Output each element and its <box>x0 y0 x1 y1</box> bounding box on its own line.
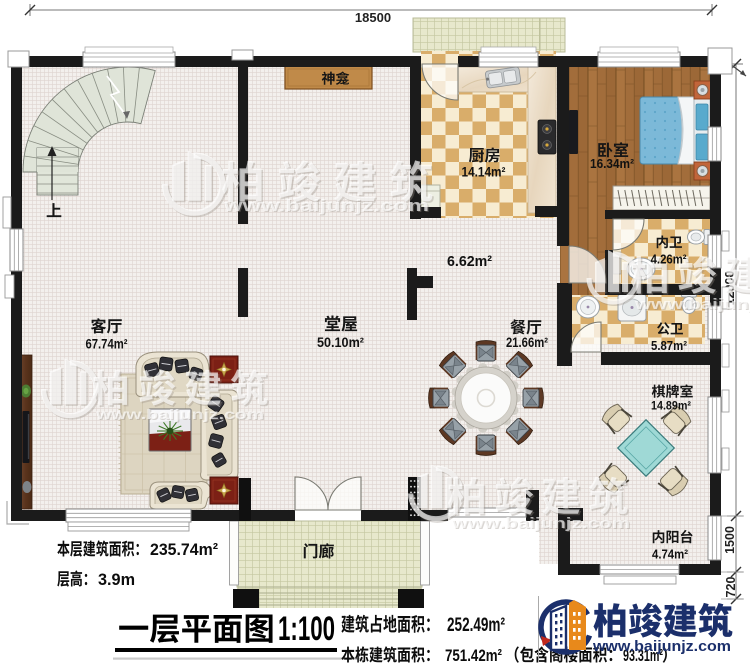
svg-text:1:100: 1:100 <box>278 610 335 648</box>
svg-text:50.10m²: 50.10m² <box>317 335 364 350</box>
svg-text:5.87m²: 5.87m² <box>651 339 687 353</box>
svg-text:www.baijunjz.com: www.baijunjz.com <box>592 638 731 655</box>
svg-text:www.baijunjz.com: www.baijunjz.com <box>634 296 750 313</box>
svg-text:720: 720 <box>724 577 738 598</box>
svg-text:751.42m²: 751.42m² <box>445 646 502 665</box>
svg-text:14.89m²: 14.89m² <box>651 399 691 413</box>
svg-text:www.baijunjz.com: www.baijunjz.com <box>451 515 630 532</box>
svg-text:18500: 18500 <box>355 10 391 25</box>
svg-text:1500: 1500 <box>723 526 737 554</box>
svg-text:21.66m²: 21.66m² <box>506 335 548 350</box>
svg-text:www.baijunjz.com: www.baijunjz.com <box>223 196 429 215</box>
svg-text:www.baijunjz.com: www.baijunjz.com <box>95 406 264 422</box>
svg-text:235.74m²: 235.74m² <box>150 540 218 559</box>
svg-text:67.74m²: 67.74m² <box>86 337 128 352</box>
svg-text:252.49m²: 252.49m² <box>447 615 505 636</box>
svg-text:4.26m²: 4.26m² <box>651 253 687 267</box>
svg-text:14.14m²: 14.14m² <box>462 165 506 180</box>
svg-text:4.74m²: 4.74m² <box>652 548 688 562</box>
svg-text:3.9m: 3.9m <box>98 570 135 589</box>
svg-text:6.62m²: 6.62m² <box>447 253 492 270</box>
svg-text:16.34m²: 16.34m² <box>590 156 635 171</box>
